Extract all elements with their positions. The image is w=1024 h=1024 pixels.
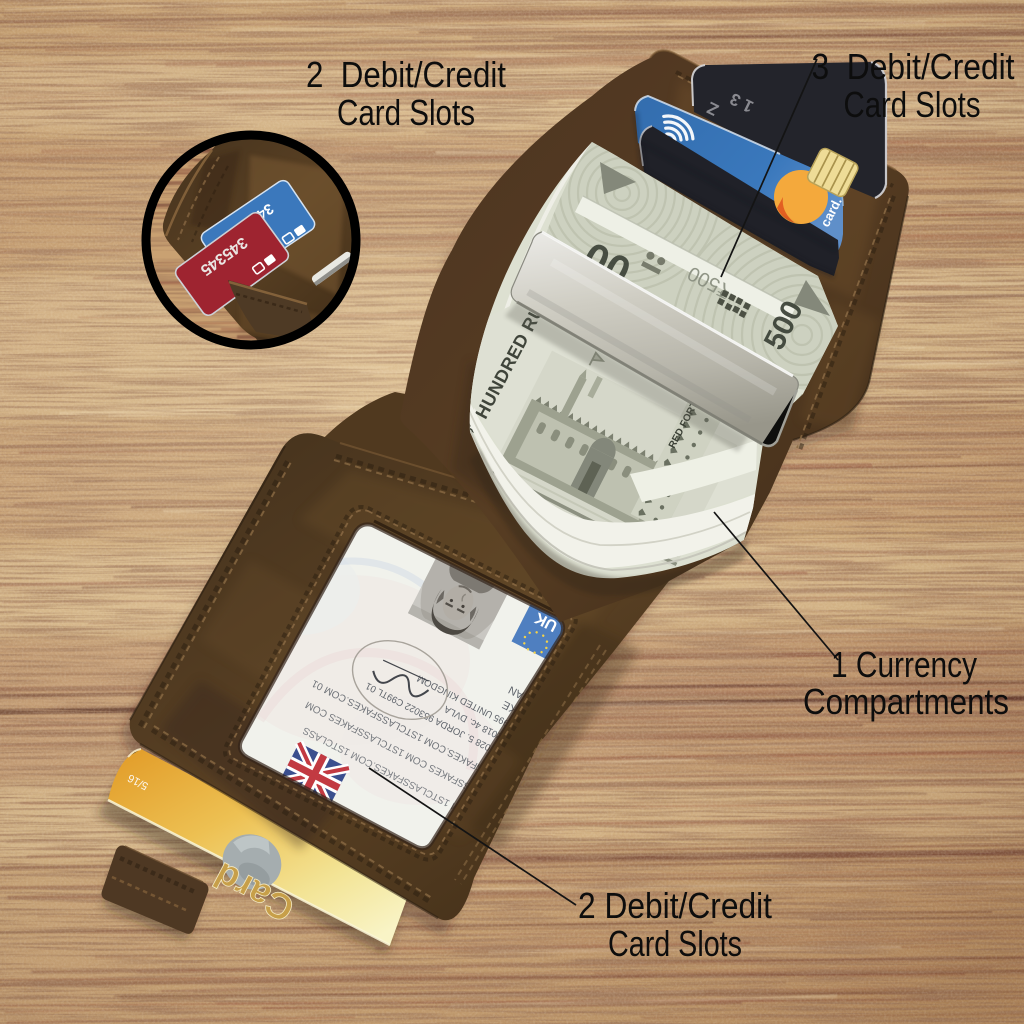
- svg-text:2 Debit/Credit: 2 Debit/Credit: [306, 54, 506, 95]
- svg-text:1 Currency: 1 Currency: [831, 644, 977, 685]
- svg-text:Card Slots: Card Slots: [844, 84, 981, 125]
- svg-text:3 Debit/Credit: 3 Debit/Credit: [812, 46, 1015, 87]
- svg-text:2 Debit/Credit: 2 Debit/Credit: [578, 885, 772, 926]
- svg-text:Card Slots: Card Slots: [337, 92, 475, 133]
- svg-text:Compartments: Compartments: [803, 681, 1009, 722]
- svg-text:Card Slots: Card Slots: [608, 923, 742, 964]
